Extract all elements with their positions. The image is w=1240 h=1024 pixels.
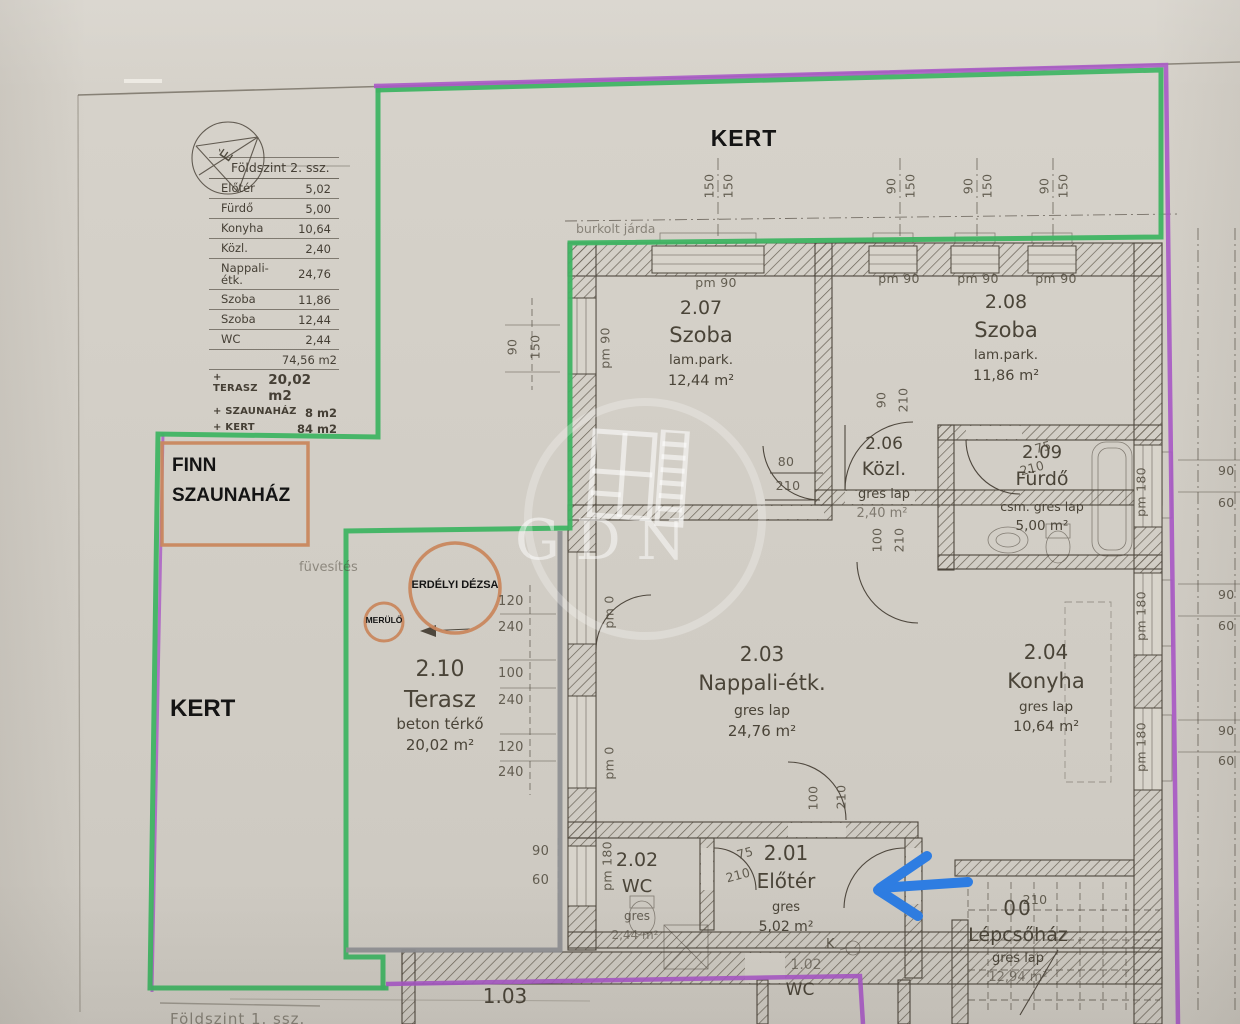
pm-label: pm 180 <box>1134 591 1147 641</box>
pm-label: pm 90 <box>598 327 611 369</box>
room-area: 24,76 m² <box>728 724 796 740</box>
dim-label: 90 <box>1218 464 1235 477</box>
room-finish: gres lap <box>992 952 1044 966</box>
floor1-title: Földszint 1. ssz. <box>170 1012 305 1024</box>
room-area: 2,44 m² <box>611 929 658 942</box>
dim-label: 90 <box>532 845 549 859</box>
room-finish: beton térkő <box>396 717 483 733</box>
dim-label: 150 <box>721 174 734 199</box>
dezsa-label: ERDÉLYI DÉZSA <box>411 580 498 592</box>
door-dim: 80 <box>778 455 795 468</box>
dim-label: 120 <box>498 595 524 609</box>
room-name: Közl. <box>862 460 906 480</box>
room-number: 1.02 <box>790 958 821 973</box>
room-number: 2.08 <box>985 293 1027 313</box>
room-finish: gres <box>624 910 650 923</box>
dim-label: 240 <box>498 621 524 635</box>
kert-left-label: KERT <box>170 696 235 721</box>
dim-label: 60 <box>1218 496 1235 509</box>
dim-label: 150 <box>903 174 916 199</box>
room-number: 2.01 <box>764 843 809 864</box>
room-number: 2.07 <box>680 299 722 319</box>
room-finish: gres <box>772 901 800 915</box>
door-dim: 210 <box>892 528 905 553</box>
table-row: Nappali-étk.24,76 <box>209 259 339 290</box>
table-row: Előtér5,02 <box>209 179 339 199</box>
room-number: 1.03 <box>483 986 528 1007</box>
room-number: 2.04 <box>1024 642 1069 663</box>
room-number: 2.03 <box>740 644 785 665</box>
table-row: Konyha10,64 <box>209 219 339 239</box>
dim-label: 150 <box>702 174 715 199</box>
door-dim: 210 <box>776 479 801 492</box>
room-area: 10,64 m² <box>1013 720 1079 735</box>
door-dim: 210 <box>834 785 847 810</box>
dim-label: 100 <box>498 667 524 681</box>
room-name: Nappali-étk. <box>698 672 825 694</box>
table-extra-row: + SZAUNAHÁZ8 m2 <box>209 404 339 420</box>
dim-label: 90 <box>1037 178 1050 195</box>
table-extra-row: + KERT84 m2 <box>209 420 339 436</box>
room-finish: csm. gres lap <box>1000 500 1084 513</box>
dim-label: 120 <box>498 741 524 755</box>
dim-label: 90 <box>505 339 518 356</box>
dim-label: 150 <box>1056 174 1069 199</box>
pm-label: pm 180 <box>1134 722 1147 772</box>
room-name: Konyha <box>1007 670 1085 692</box>
table-total-row: 74,56 m2 <box>209 350 339 370</box>
room-name: Terasz <box>404 688 476 712</box>
room-name: WC <box>622 878 652 897</box>
table-extra-row: + TERASZ20,02 m2 <box>209 370 339 404</box>
room-area: 2,40 m² <box>857 507 908 521</box>
room-area: 20,02 m² <box>406 738 474 754</box>
sauna-label-line1: FINN <box>172 456 216 476</box>
table-row: Közl.2,40 <box>209 239 339 259</box>
dim-label: 90 <box>884 178 897 195</box>
dim-label: 240 <box>498 766 524 780</box>
room-name: Lépcsőház <box>968 926 1068 946</box>
room-area: 12,44 m² <box>668 374 734 389</box>
room-finish: gres lap <box>858 488 910 502</box>
pm-label: pm 180 <box>1134 467 1147 517</box>
pm-label: pm 0 <box>602 595 615 628</box>
jarda-label: burkolt járda <box>576 222 655 235</box>
fuvesites-label: füvesítés <box>299 561 358 575</box>
room-number: 2.10 <box>416 658 465 681</box>
merulo-label: MERÜLŐ <box>366 616 403 625</box>
table-row: Fürdő5,00 <box>209 199 339 219</box>
room-area: 12,94 m² <box>988 971 1047 985</box>
room-name: Előtér <box>757 871 816 892</box>
dim-label: 150 <box>980 174 993 199</box>
room-name: WC <box>786 982 815 1000</box>
dim-label: 90 <box>1218 724 1235 737</box>
door-dim: 210 <box>1023 893 1048 906</box>
dim-label: 60 <box>532 874 549 888</box>
room-number: 2.06 <box>865 436 903 454</box>
dim-label: 60 <box>1218 619 1235 632</box>
room-finish: lam.park. <box>669 353 733 367</box>
pm-label: pm 90 <box>1035 272 1077 285</box>
room-finish: lam.park. <box>974 348 1038 362</box>
room-area: 5,02 m² <box>759 920 814 935</box>
pm-label: pm 0 <box>602 746 615 779</box>
dim-label: 90 <box>1218 588 1235 601</box>
pm-label: pm 180 <box>600 841 613 891</box>
door-dim: 210 <box>896 388 909 413</box>
room-area: 5,00 m² <box>1016 519 1069 533</box>
area-summary-table: Földszint 2. ssz. Előtér5,02 Fürdő5,00 K… <box>209 157 339 436</box>
pm-label: pm 90 <box>878 272 920 285</box>
room-name: Szoba <box>669 324 732 346</box>
table-row: WC2,44 <box>209 330 339 350</box>
room-finish: gres lap <box>734 704 790 719</box>
dim-label: 60 <box>1218 754 1235 767</box>
sauna-label-line2: SZAUNAHÁZ <box>172 486 290 506</box>
door-dim: 100 <box>870 528 883 553</box>
table-row: Szoba12,44 <box>209 310 339 330</box>
room-finish: gres lap <box>1019 700 1073 714</box>
door-dim: 100 <box>806 786 819 811</box>
scanned-floorplan-page: { "compass": {"letter": "É"}, "area_tabl… <box>0 0 1240 1024</box>
k-symbol: K <box>826 938 835 952</box>
kert-top-label: KERT <box>711 126 778 150</box>
room-name: Szoba <box>974 319 1037 341</box>
pm-label: pm 90 <box>695 276 737 289</box>
dim-label: 240 <box>498 694 524 708</box>
pm-label: pm 90 <box>957 272 999 285</box>
room-area: 11,86 m² <box>973 369 1039 384</box>
door-dim: 90 <box>874 392 887 409</box>
room-number: 2.02 <box>616 851 658 871</box>
table-row: Szoba11,86 <box>209 290 339 310</box>
dim-label: 90 <box>961 178 974 195</box>
dim-label: 150 <box>528 335 541 360</box>
